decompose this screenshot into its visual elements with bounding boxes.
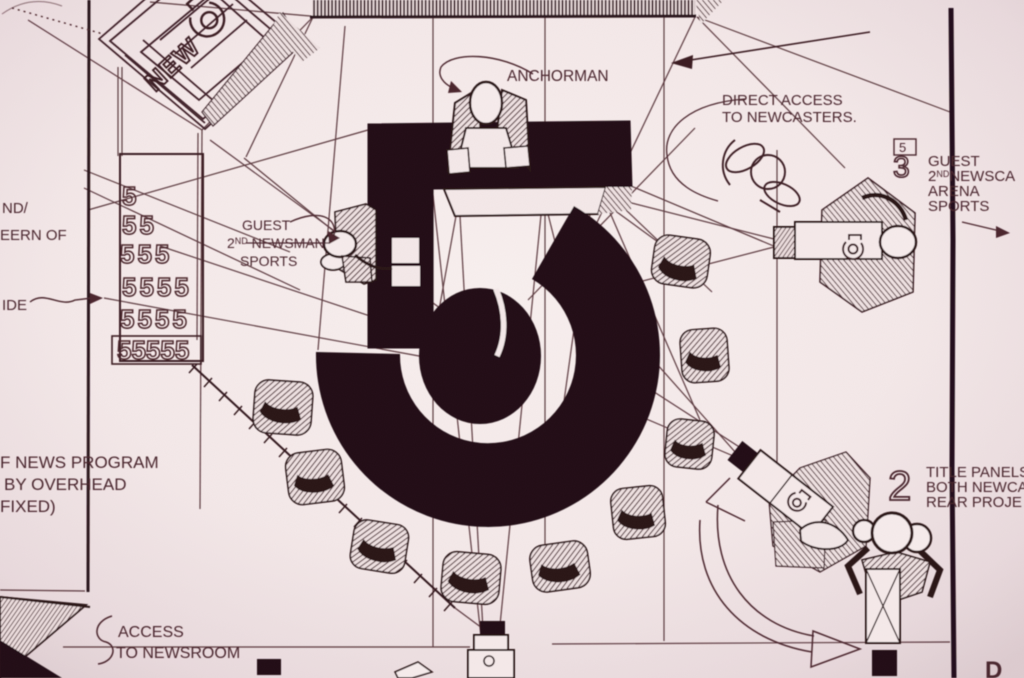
svg-text:2: 2	[888, 462, 911, 509]
svg-text:ND/: ND/	[2, 200, 29, 217]
svg-text:IDE: IDE	[2, 297, 27, 314]
svg-text:F NEWS PROGRAM: F NEWS PROGRAM	[0, 453, 159, 472]
svg-text:5555: 5555	[120, 304, 190, 334]
svg-text:555: 555	[120, 239, 172, 269]
svg-text:SPORTS: SPORTS	[928, 198, 989, 215]
svg-text:ACCESS: ACCESS	[118, 624, 184, 641]
svg-text:55555: 55555	[117, 335, 189, 365]
svg-text:5: 5	[122, 181, 139, 211]
svg-text:TO NEWSROOM: TO NEWSROOM	[116, 645, 240, 662]
svg-text:TO NEWCASTERS.: TO NEWCASTERS.	[722, 109, 857, 126]
svg-text:D: D	[985, 657, 1002, 678]
svg-text:FIXED): FIXED)	[0, 497, 56, 516]
svg-text:SPORTS: SPORTS	[240, 253, 297, 269]
svg-text:55: 55	[122, 210, 157, 240]
svg-text:5555: 5555	[122, 272, 192, 302]
svg-text:DIRECT ACCESS: DIRECT ACCESS	[722, 92, 843, 109]
svg-text:ANCHORMAN: ANCHORMAN	[507, 68, 609, 85]
svg-text:GUEST: GUEST	[242, 217, 291, 233]
svg-text:3: 3	[893, 151, 910, 184]
svg-text:REAR PROJE: REAR PROJE	[926, 494, 1022, 511]
svg-text:BY OVERHEAD: BY OVERHEAD	[4, 475, 127, 494]
svg-text:EERN OF: EERN OF	[0, 227, 67, 244]
